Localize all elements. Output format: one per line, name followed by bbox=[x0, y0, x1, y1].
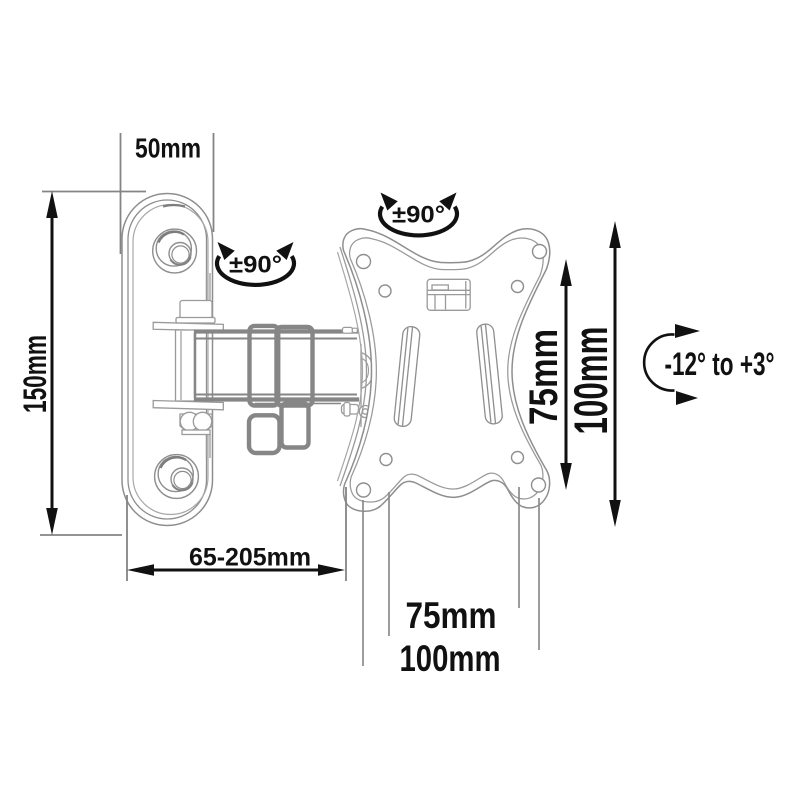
svg-text:75mm: 75mm bbox=[522, 329, 566, 425]
svg-text:-12° to +3°: -12° to +3° bbox=[665, 346, 775, 382]
svg-text:±90°: ±90° bbox=[392, 202, 445, 229]
svg-text:±90°: ±90° bbox=[229, 252, 282, 279]
svg-text:50mm: 50mm bbox=[135, 133, 201, 164]
svg-text:100mm: 100mm bbox=[564, 327, 617, 435]
svg-text:75mm: 75mm bbox=[406, 595, 497, 636]
svg-text:65-205mm: 65-205mm bbox=[189, 544, 311, 572]
svg-text:100mm: 100mm bbox=[400, 638, 501, 679]
svg-text:150mm: 150mm bbox=[17, 335, 53, 413]
